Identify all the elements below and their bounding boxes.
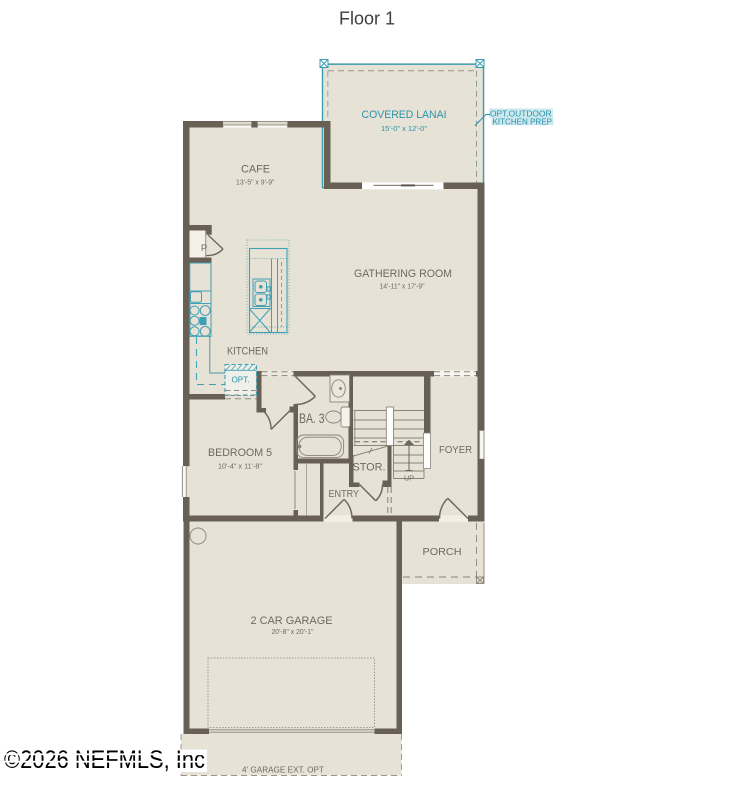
svg-text:OPT.: OPT. [232, 375, 250, 385]
svg-text:BEDROOM 5: BEDROOM 5 [208, 447, 272, 459]
svg-text:15'-0" x 12'-0": 15'-0" x 12'-0" [381, 126, 428, 133]
svg-text:FOYER: FOYER [439, 444, 472, 456]
svg-text:2 CAR GARAGE: 2 CAR GARAGE [251, 615, 333, 627]
svg-text:PORCH: PORCH [423, 546, 462, 558]
svg-text:KITCHEN: KITCHEN [227, 346, 268, 358]
svg-text:13'-5" x 9'-9": 13'-5" x 9'-9" [236, 180, 275, 187]
svg-text:P: P [201, 243, 207, 254]
svg-text:BA. 3: BA. 3 [299, 411, 325, 426]
svg-text:GATHERING ROOM: GATHERING ROOM [354, 268, 452, 280]
svg-text:ENTRY: ENTRY [329, 489, 360, 500]
svg-text:COVERED LANAI: COVERED LANAI [362, 109, 447, 121]
svg-text:STOR.: STOR. [353, 462, 386, 474]
svg-text:KITCHEN PREP: KITCHEN PREP [493, 116, 553, 126]
svg-text:©2026 NEFMLS, Inc: ©2026 NEFMLS, Inc [4, 746, 205, 774]
svg-text:CAFE: CAFE [241, 164, 270, 176]
svg-text:4' GARAGE EXT. OPT: 4' GARAGE EXT. OPT [242, 766, 324, 775]
svg-text:Floor 1: Floor 1 [339, 9, 395, 29]
svg-text:14'-11" x 17'-9": 14'-11" x 17'-9" [380, 284, 425, 291]
svg-text:10'-4" x 11'-8": 10'-4" x 11'-8" [218, 464, 263, 471]
svg-text:UP: UP [404, 474, 414, 483]
svg-text:20'-8" x 20'-1": 20'-8" x 20'-1" [272, 629, 314, 636]
